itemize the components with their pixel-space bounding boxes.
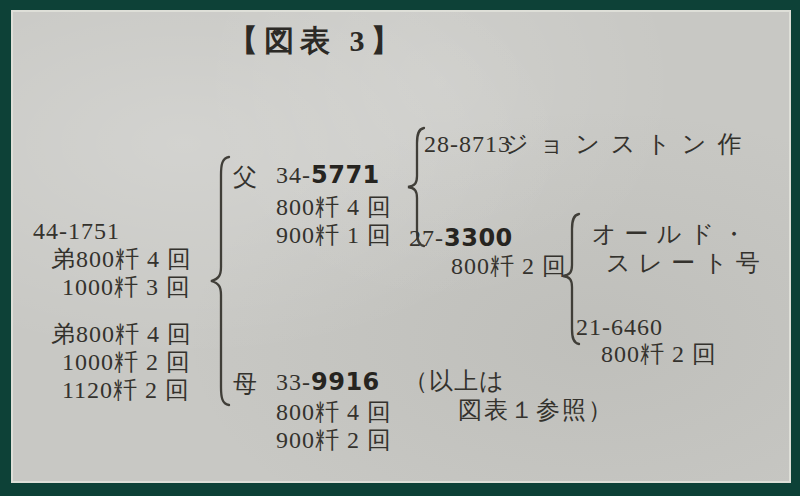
mother-label: 母 [233,371,258,397]
mother-ring-prefix: 33- [276,369,311,395]
pedigree-brace-parents [208,155,234,407]
subject-ring-number: 44-1751 [33,218,120,244]
father-ring-number: 34-5771 [276,162,380,188]
granddam-ring-bold: 3300 [444,224,513,252]
granddam-ring-prefix: 27- [409,225,444,251]
great-granddam-record: 800粁 2 回 [601,341,717,367]
subject-record: 1120粁 2 回 [62,377,190,403]
subject-record: 1000粁 2 回 [62,349,191,375]
father-label: 父 [233,164,258,190]
mother-record: 900粁 2 回 [276,427,392,453]
grandsire-ring-number: 28-8713 [424,131,511,157]
father-record: 800粁 4 回 [276,194,392,220]
subject-record: 弟800粁 4 回 [51,321,192,347]
father-record: 900粁 1 回 [276,222,392,248]
granddam-ring-number: 27-3300 [409,225,513,251]
mother-ring-bold: 9916 [311,368,380,396]
granddam-record: 800粁 2 回 [451,253,567,279]
mother-note-close: 図表１参照） [458,397,614,423]
great-granddam-ring-number: 21-6460 [576,314,663,340]
grandsire-breeder: ジョンストン作 [504,131,752,157]
great-grandsire-name-line1: オールド・ [592,221,754,247]
father-ring-prefix: 34- [276,162,311,188]
great-grandsire-name-line2: スレート号 [606,250,768,276]
mother-record: 800粁 4 回 [276,399,392,425]
subject-record: 1000粁 3 回 [62,274,191,300]
mother-ring-number: 33-9916 [276,369,380,395]
father-ring-bold: 5771 [311,161,380,189]
mother-note-open: （以上は [404,368,505,394]
figure-title: 【図表 3】 [228,24,407,57]
subject-record: 弟800粁 4 回 [51,246,192,272]
